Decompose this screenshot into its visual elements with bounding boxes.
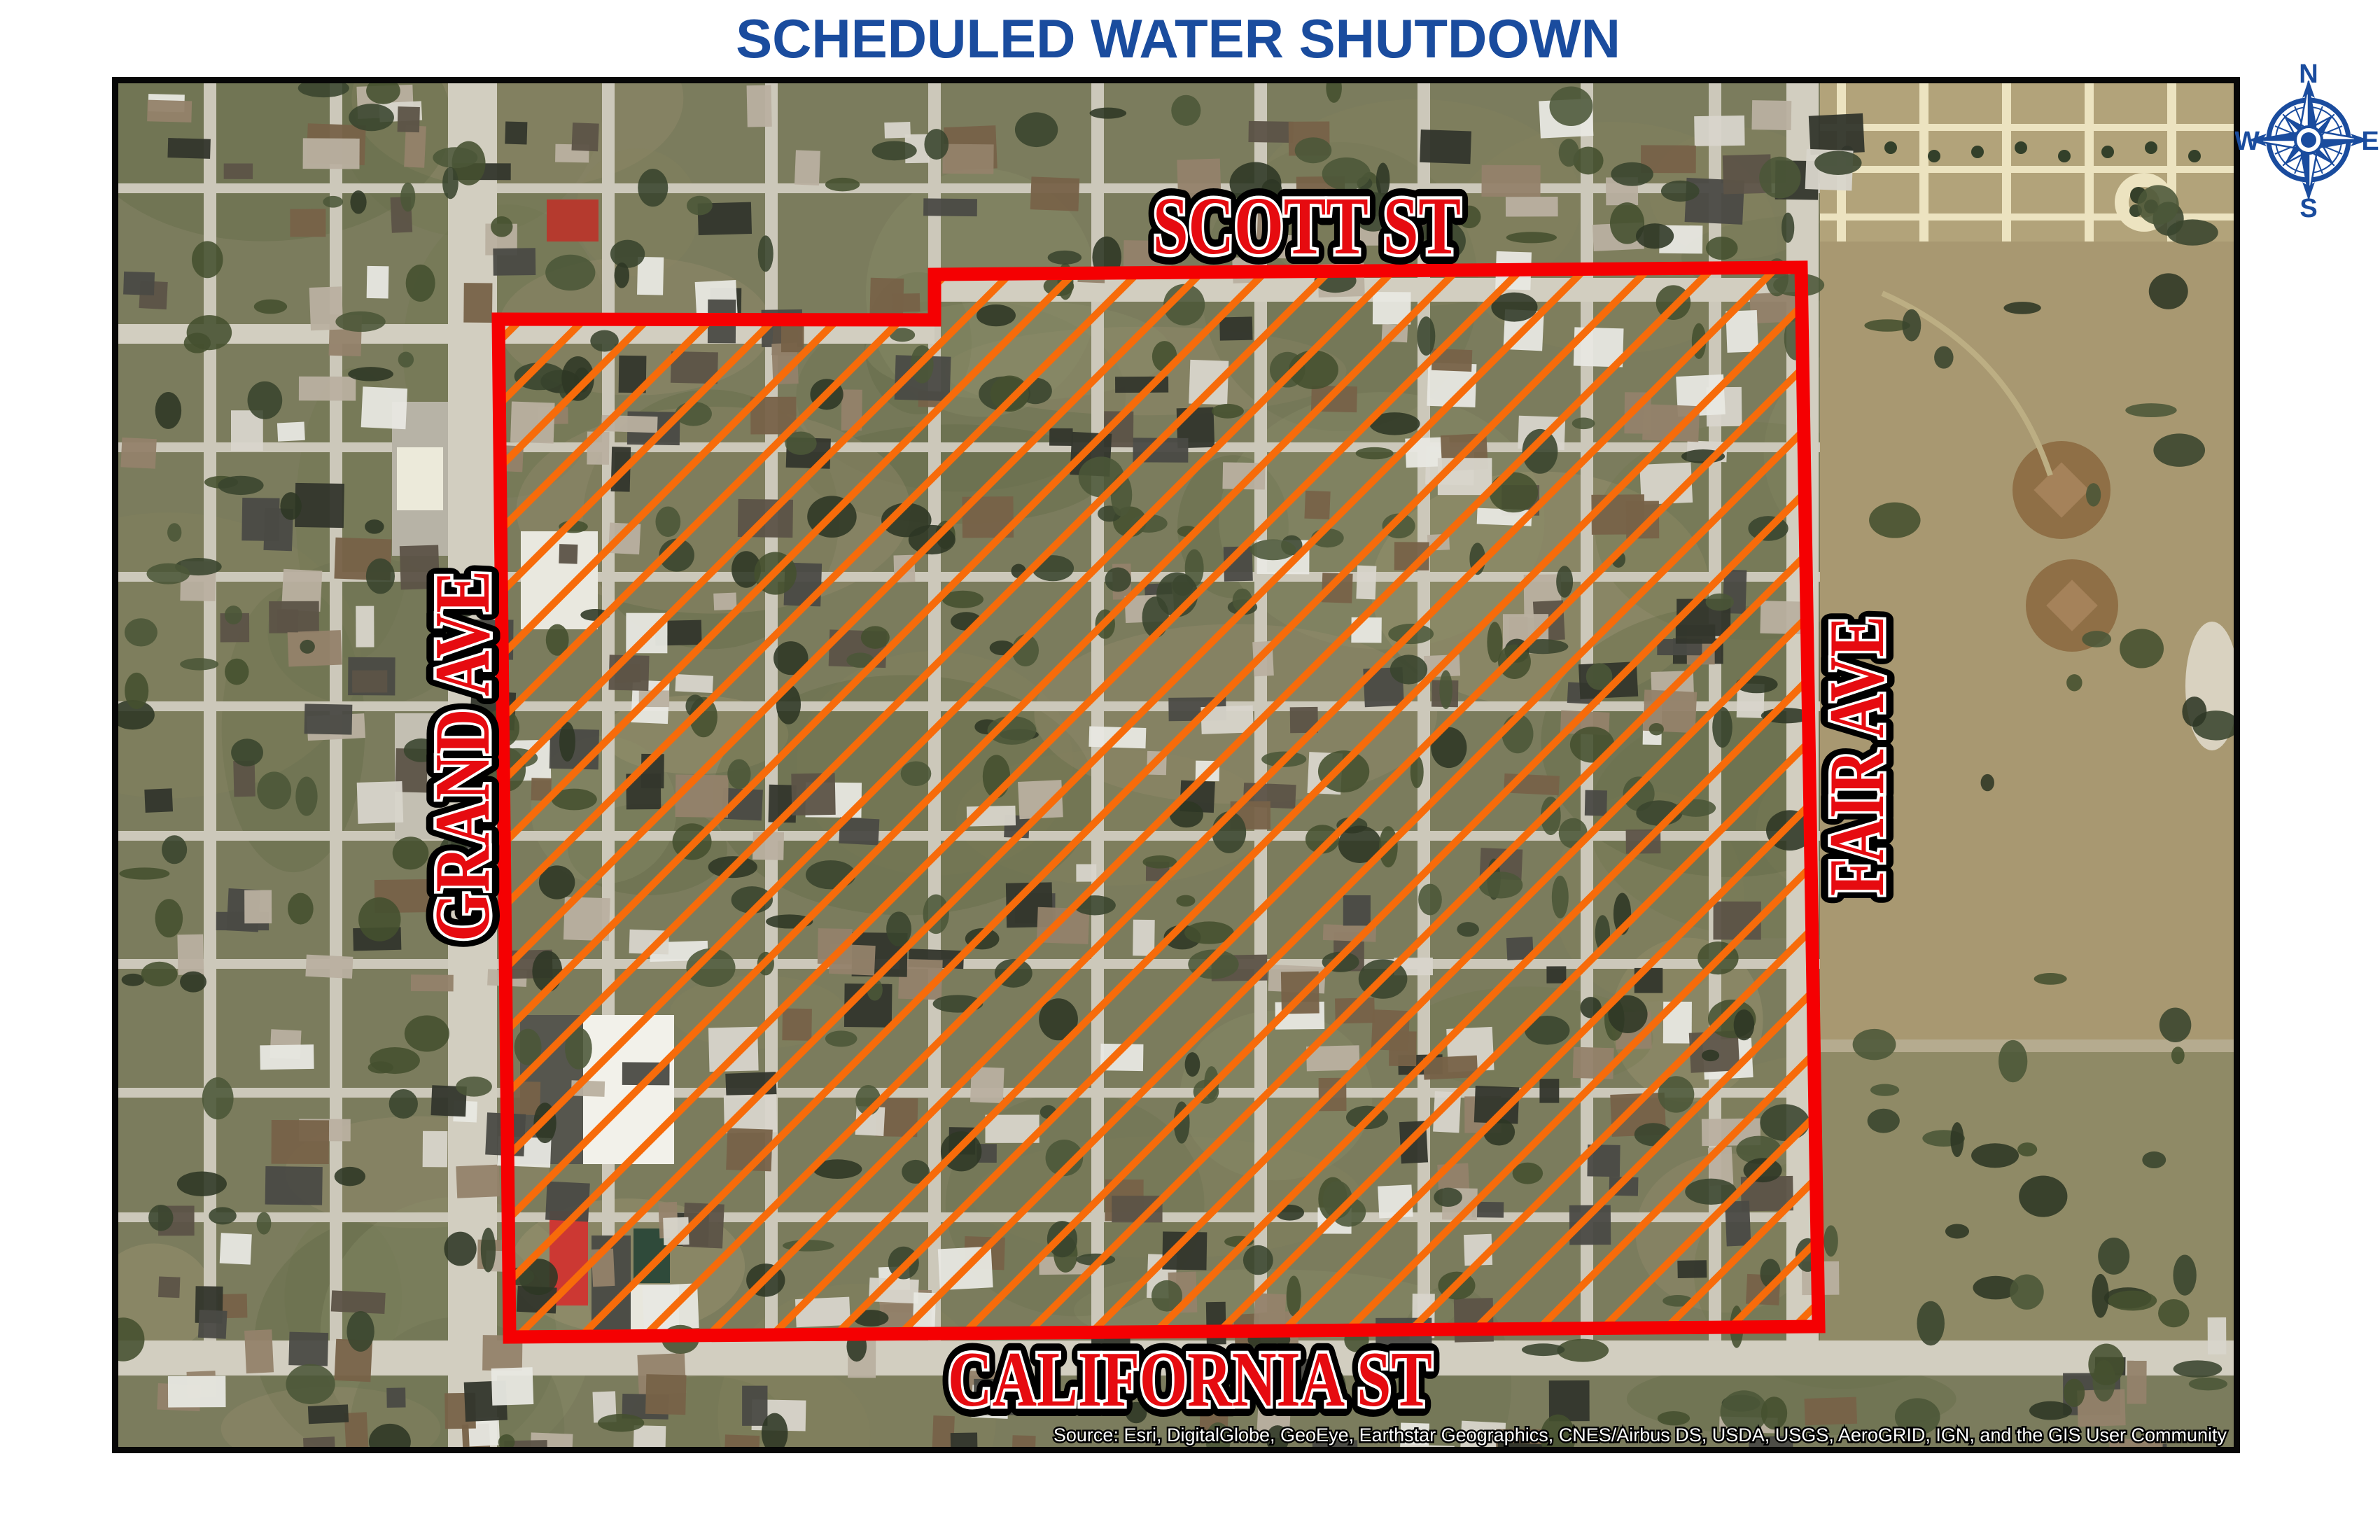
svg-text:CALIFORNIA ST: CALIFORNIA ST: [948, 1336, 1432, 1423]
svg-text:SCOTT ST: SCOTT ST: [1153, 180, 1461, 272]
compass-label-south: S: [2299, 194, 2317, 219]
attribution-text: Source: Esri, DigitalGlobe, GeoEye, Eart…: [1053, 1424, 2227, 1445]
compass-rose-graphic: [2248, 80, 2369, 200]
street-label-grand: GRAND AVE GRAND AVE: [419, 570, 506, 941]
aerial-map: SCOTT ST SCOTT ST GRAND AVE GRAND AVE FA…: [112, 77, 2240, 1453]
compass-rose: N S E W: [2235, 62, 2380, 219]
street-label-scott: SCOTT ST SCOTT ST: [1153, 180, 1461, 272]
compass-label-north: N: [2299, 62, 2318, 89]
svg-text:FAIR AVE: FAIR AVE: [1814, 616, 1900, 896]
street-label-california: CALIFORNIA ST CALIFORNIA ST: [948, 1336, 1432, 1423]
shutdown-area-polygon: [498, 267, 1819, 1337]
compass-label-west: W: [2235, 127, 2260, 156]
compass-label-east: E: [2361, 127, 2379, 156]
page-title: SCHEDULED WATER SHUTDOWN: [114, 7, 2242, 71]
street-label-fair: FAIR AVE FAIR AVE: [1814, 616, 1900, 896]
flyer-page: { "title": { "text": "SCHEDULED WATER SH…: [0, 0, 2380, 1540]
svg-text:GRAND AVE: GRAND AVE: [419, 570, 506, 941]
